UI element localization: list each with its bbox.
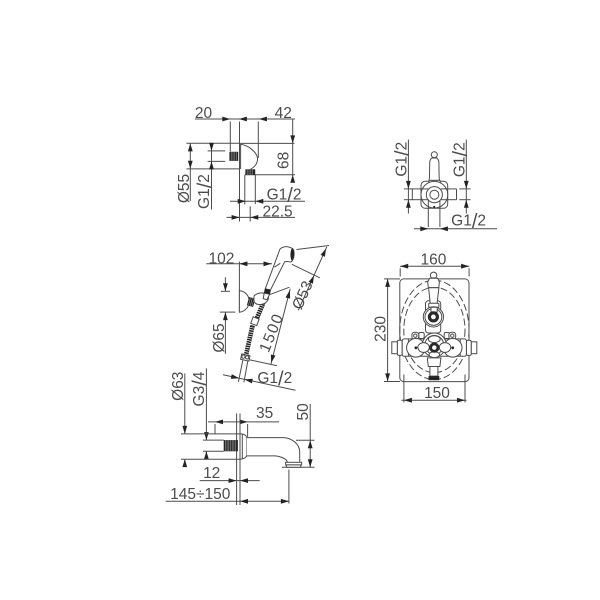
svg-text:Ø53: Ø53 bbox=[289, 279, 316, 313]
svg-text:42: 42 bbox=[275, 105, 292, 122]
svg-text:50: 50 bbox=[295, 403, 312, 421]
svg-text:Ø55: Ø55 bbox=[176, 174, 193, 203]
svg-text:20: 20 bbox=[195, 105, 213, 122]
svg-text:68: 68 bbox=[275, 152, 292, 169]
svg-text:G1/2: G1/2 bbox=[392, 142, 414, 177]
svg-text:35: 35 bbox=[256, 405, 273, 422]
svg-text:G1/2: G1/2 bbox=[451, 211, 486, 233]
svg-text:Ø63: Ø63 bbox=[170, 372, 187, 401]
svg-text:G1/2: G1/2 bbox=[450, 142, 472, 177]
svg-text:102: 102 bbox=[208, 251, 234, 268]
svg-text:1500: 1500 bbox=[256, 311, 287, 355]
svg-text:22.5: 22.5 bbox=[263, 203, 293, 220]
svg-text:12: 12 bbox=[203, 465, 220, 482]
svg-text:160: 160 bbox=[420, 252, 446, 269]
svg-text:G1/2: G1/2 bbox=[257, 368, 292, 390]
svg-text:145÷150: 145÷150 bbox=[170, 486, 231, 503]
svg-text:150: 150 bbox=[424, 385, 450, 402]
svg-text:Ø65: Ø65 bbox=[211, 323, 228, 352]
svg-text:G1/2: G1/2 bbox=[195, 174, 217, 209]
svg-text:G3/4: G3/4 bbox=[189, 371, 211, 406]
svg-text:230: 230 bbox=[373, 316, 390, 342]
